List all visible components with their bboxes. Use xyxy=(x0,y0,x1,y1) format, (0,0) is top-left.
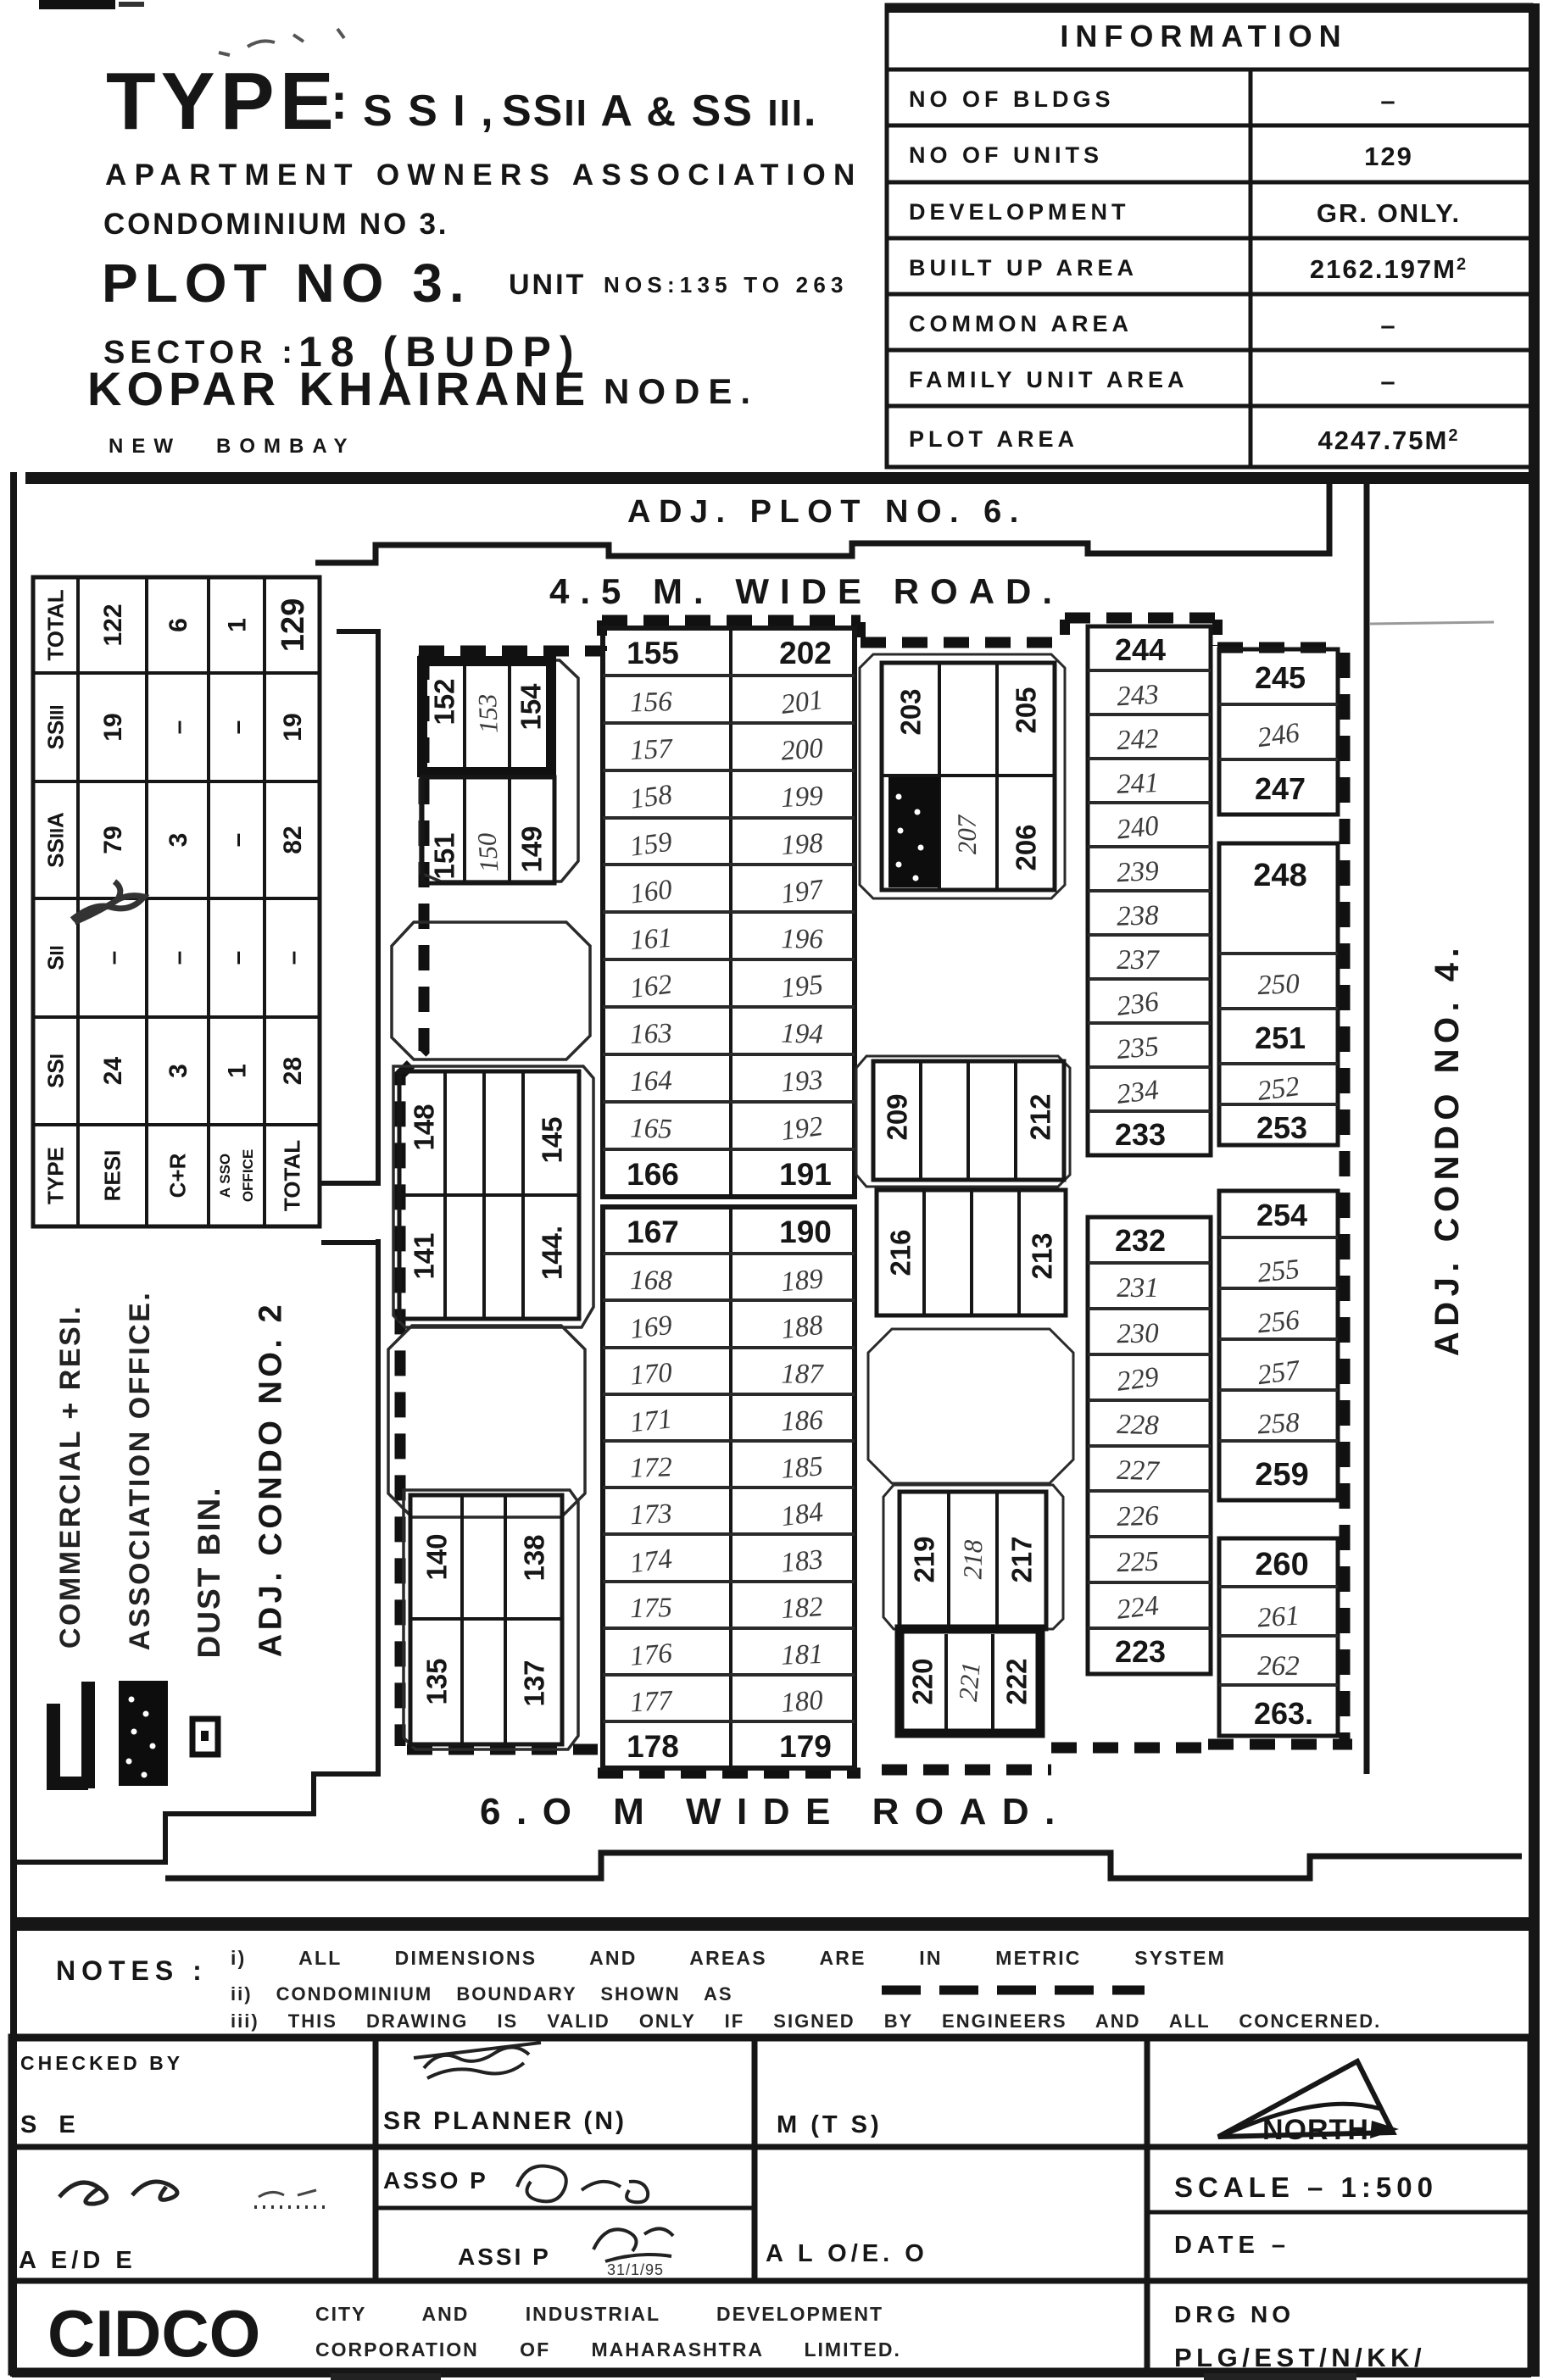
svg-text:207: 207 xyxy=(952,814,982,854)
svg-text:ASSOCIATION OFFICE.: ASSOCIATION OFFICE. xyxy=(124,1291,156,1651)
svg-text:3: 3 xyxy=(164,833,192,848)
svg-text:TYPE: TYPE xyxy=(43,1147,69,1204)
svg-text:171: 171 xyxy=(628,1404,673,1438)
svg-text:144.: 144. xyxy=(537,1226,568,1280)
svg-text:233: 233 xyxy=(1115,1117,1166,1152)
svg-text:258: 258 xyxy=(1256,1408,1301,1441)
svg-text:–: – xyxy=(1380,366,1396,396)
svg-text:161: 161 xyxy=(629,923,673,956)
svg-text:174: 174 xyxy=(628,1543,674,1579)
svg-text:6.O M WIDE ROAD.: 6.O M WIDE ROAD. xyxy=(480,1791,1071,1832)
svg-text:SSIIA: SSIIA xyxy=(43,812,69,868)
svg-text:ADJ. CONDO NO. 2: ADJ. CONDO NO. 2 xyxy=(253,1301,288,1657)
svg-text:122: 122 xyxy=(99,603,127,646)
svg-text:TYPE: TYPE xyxy=(106,56,339,147)
svg-text:–: – xyxy=(1380,310,1396,340)
svg-text:205: 205 xyxy=(1011,687,1042,733)
svg-text:–: – xyxy=(1380,86,1396,115)
svg-text:28: 28 xyxy=(279,1057,307,1085)
svg-text:244: 244 xyxy=(1115,632,1166,667)
svg-text:DUST BIN.: DUST BIN. xyxy=(192,1487,226,1659)
svg-text:223: 223 xyxy=(1115,1634,1166,1669)
svg-text:–: – xyxy=(224,951,252,965)
svg-text:190: 190 xyxy=(779,1215,832,1249)
svg-text:FAMILY UNIT AREA: FAMILY UNIT AREA xyxy=(909,367,1189,392)
svg-text:ASSO P: ASSO P xyxy=(383,2167,488,2194)
svg-text:235: 235 xyxy=(1116,1032,1160,1065)
svg-text:182: 182 xyxy=(780,1592,824,1625)
svg-text:203: 203 xyxy=(895,688,927,735)
svg-text:1: 1 xyxy=(224,618,252,632)
svg-text:DRG NO: DRG NO xyxy=(1174,2301,1295,2327)
svg-text:TOTAL: TOTAL xyxy=(43,589,69,660)
svg-text:252: 252 xyxy=(1256,1071,1301,1107)
svg-text:4247.75M2: 4247.75M2 xyxy=(1317,425,1459,455)
svg-text:CIDCO: CIDCO xyxy=(47,2296,260,2371)
svg-text:169: 169 xyxy=(628,1310,673,1345)
svg-text:CHECKED BY: CHECKED BY xyxy=(20,2052,183,2074)
svg-text:177: 177 xyxy=(629,1685,674,1718)
svg-text:–: – xyxy=(224,833,252,848)
svg-text:DATE –: DATE – xyxy=(1174,2232,1290,2259)
svg-text:A SSO: A SSO xyxy=(217,1154,233,1198)
svg-text:NOS:135 TO 263: NOS:135 TO 263 xyxy=(604,272,849,297)
svg-text:PLG/EST/N/KK/: PLG/EST/N/KK/ xyxy=(1174,2343,1426,2372)
svg-text:200: 200 xyxy=(780,733,825,767)
svg-text:NO OF BLDGS: NO OF BLDGS xyxy=(909,86,1115,112)
svg-text:SCALE – 1:500: SCALE – 1:500 xyxy=(1174,2171,1438,2203)
svg-text:246: 246 xyxy=(1256,718,1301,753)
svg-text:NO OF UNITS: NO OF UNITS xyxy=(909,142,1103,168)
svg-text:ii) CONDOMINIUM BOUNDARY SHOWN: ii) CONDOMINIUM BOUNDARY SHOWN AS xyxy=(231,1983,733,2005)
svg-text:175: 175 xyxy=(630,1593,672,1624)
svg-text:184: 184 xyxy=(779,1497,825,1532)
svg-text:iii) THIS DRAWING IS VALID ONL: iii) THIS DRAWING IS VALID ONLY IF SIGNE… xyxy=(231,2010,1381,2032)
svg-text:194: 194 xyxy=(781,1019,823,1050)
svg-text:213: 213 xyxy=(1027,1232,1058,1279)
svg-text:2162.197M2: 2162.197M2 xyxy=(1310,254,1468,284)
svg-text:196: 196 xyxy=(781,924,823,954)
svg-text:158: 158 xyxy=(628,780,674,815)
svg-text:247: 247 xyxy=(1255,771,1306,806)
svg-text:176: 176 xyxy=(629,1638,674,1672)
svg-text:248: 248 xyxy=(1253,858,1306,893)
svg-text:135: 135 xyxy=(421,1658,453,1704)
svg-text:250: 250 xyxy=(1256,969,1301,1001)
svg-text:A E/D E: A E/D E xyxy=(19,2247,136,2274)
svg-text:220: 220 xyxy=(907,1658,939,1704)
svg-text:157: 157 xyxy=(629,734,674,766)
svg-text:163: 163 xyxy=(630,1018,673,1049)
svg-text:155: 155 xyxy=(627,636,679,670)
svg-text:19: 19 xyxy=(279,713,307,741)
svg-text:255: 255 xyxy=(1256,1254,1301,1288)
svg-text:159: 159 xyxy=(628,826,674,862)
svg-text:79: 79 xyxy=(99,826,127,854)
svg-text:225: 225 xyxy=(1117,1547,1160,1579)
svg-text:240: 240 xyxy=(1115,810,1161,845)
svg-text:SR PLANNER (N): SR PLANNER (N) xyxy=(383,2107,627,2135)
svg-text:170: 170 xyxy=(629,1358,674,1392)
svg-text:232: 232 xyxy=(1115,1223,1166,1258)
svg-text:179: 179 xyxy=(779,1729,832,1764)
svg-text:UNIT: UNIT xyxy=(509,269,586,301)
svg-text:BUILT UP AREA: BUILT UP AREA xyxy=(909,255,1138,281)
svg-text:ASSI P: ASSI P xyxy=(458,2244,551,2270)
svg-text:234: 234 xyxy=(1115,1075,1161,1110)
svg-text:1: 1 xyxy=(224,1064,252,1078)
svg-text:195: 195 xyxy=(780,970,825,1004)
svg-text:APARTMENT OWNERS ASSOCIATION: APARTMENT OWNERS ASSOCIATION xyxy=(105,158,863,192)
svg-text:166: 166 xyxy=(627,1157,679,1192)
svg-text:221: 221 xyxy=(953,1660,986,1702)
svg-text:PLOT AREA: PLOT AREA xyxy=(909,426,1078,452)
svg-text:238: 238 xyxy=(1117,900,1160,931)
svg-text:141: 141 xyxy=(409,1232,440,1279)
svg-text:261: 261 xyxy=(1256,1600,1301,1633)
svg-text:NORTH: NORTH xyxy=(1262,2114,1369,2146)
svg-text:218: 218 xyxy=(958,1539,989,1579)
svg-text:189: 189 xyxy=(780,1264,825,1298)
svg-text:243: 243 xyxy=(1116,680,1160,713)
svg-text:–: – xyxy=(279,951,307,965)
svg-text:NODE.: NODE. xyxy=(604,371,759,411)
svg-text:260: 260 xyxy=(1255,1547,1308,1582)
svg-text:A L O/E. O: A L O/E. O xyxy=(766,2240,928,2267)
svg-text:140: 140 xyxy=(421,1533,453,1580)
svg-text:191: 191 xyxy=(779,1157,832,1192)
svg-text:152: 152 xyxy=(429,678,460,725)
svg-text:ADJ. CONDO NO. 4.: ADJ. CONDO NO. 4. xyxy=(1429,943,1466,1356)
svg-text:M (T S): M (T S) xyxy=(777,2111,883,2138)
svg-text:180: 180 xyxy=(780,1685,825,1719)
svg-text:172: 172 xyxy=(630,1452,672,1483)
svg-text:NEW: NEW xyxy=(109,435,181,458)
svg-text:–: – xyxy=(99,951,127,965)
svg-text:224: 224 xyxy=(1115,1591,1160,1626)
svg-text:–: – xyxy=(164,951,192,965)
svg-text:138: 138 xyxy=(519,1534,550,1581)
svg-text:SSI: SSI xyxy=(43,1054,69,1088)
svg-text:259: 259 xyxy=(1255,1457,1308,1493)
svg-text:217: 217 xyxy=(1006,1536,1038,1582)
svg-text:212: 212 xyxy=(1025,1093,1056,1140)
svg-text:254: 254 xyxy=(1256,1198,1307,1232)
svg-text:186: 186 xyxy=(781,1405,824,1437)
svg-text:187: 187 xyxy=(781,1360,824,1390)
svg-text:227: 227 xyxy=(1117,1455,1161,1487)
svg-text:219: 219 xyxy=(909,1536,940,1582)
svg-text:173: 173 xyxy=(629,1499,672,1531)
svg-text:149: 149 xyxy=(516,826,548,872)
svg-text:NOTES :: NOTES : xyxy=(56,1955,208,1986)
svg-text:6: 6 xyxy=(164,618,192,632)
svg-text:228: 228 xyxy=(1117,1410,1160,1442)
svg-text:226: 226 xyxy=(1117,1501,1160,1532)
svg-text:RESI: RESI xyxy=(100,1150,125,1202)
svg-text:241: 241 xyxy=(1117,768,1160,800)
svg-text:167: 167 xyxy=(627,1215,679,1249)
svg-text:SSIII: SSIII xyxy=(43,704,69,749)
svg-text:COMMON AREA: COMMON AREA xyxy=(909,311,1133,336)
svg-text:CORPORATION OF MAHARASHTRA LIM: CORPORATION OF MAHARASHTRA LIMITED. xyxy=(315,2338,901,2361)
svg-text:198: 198 xyxy=(780,828,824,861)
svg-text:–: – xyxy=(164,720,192,735)
svg-text:151: 151 xyxy=(429,832,460,879)
svg-text:150: 150 xyxy=(471,831,504,873)
svg-text:i) ALL DIMENSIONS AND AREAS AR: i) ALL DIMENSIONS AND AREAS ARE IN METRI… xyxy=(231,1947,1226,1969)
svg-text:222: 222 xyxy=(1001,1658,1033,1704)
svg-text:216: 216 xyxy=(885,1229,916,1276)
svg-text:253: 253 xyxy=(1256,1110,1307,1145)
svg-text:197: 197 xyxy=(779,874,826,909)
svg-text:262: 262 xyxy=(1257,1651,1300,1682)
svg-text:129: 129 xyxy=(276,598,311,652)
svg-text:178: 178 xyxy=(627,1729,679,1764)
svg-text:24: 24 xyxy=(99,1057,127,1086)
svg-text:209: 209 xyxy=(882,1093,913,1140)
svg-text:251: 251 xyxy=(1255,1020,1306,1055)
svg-text:PLOT NO 3.: PLOT NO 3. xyxy=(102,253,471,314)
svg-text:199: 199 xyxy=(780,781,823,813)
svg-text:263.: 263. xyxy=(1254,1696,1313,1731)
svg-text:193: 193 xyxy=(780,1065,824,1098)
svg-text:KOPAR KHAIRANE: KOPAR KHAIRANE xyxy=(87,362,590,415)
svg-text:COMMERCIAL + RESI.: COMMERCIAL + RESI. xyxy=(54,1304,86,1649)
svg-text:154: 154 xyxy=(515,683,547,731)
svg-text:153: 153 xyxy=(472,693,504,734)
svg-text:201: 201 xyxy=(779,685,825,720)
svg-text:SII: SII xyxy=(43,945,69,970)
svg-text:239: 239 xyxy=(1116,856,1159,888)
svg-text:188: 188 xyxy=(779,1310,825,1346)
svg-text:256: 256 xyxy=(1256,1305,1301,1340)
svg-text:S E: S E xyxy=(20,2111,83,2138)
svg-text:BOMBAY: BOMBAY xyxy=(216,435,355,458)
svg-text:229: 229 xyxy=(1115,1362,1161,1398)
svg-text:181: 181 xyxy=(781,1639,824,1671)
svg-text:4.5 M. WIDE ROAD.: 4.5 M. WIDE ROAD. xyxy=(549,571,1063,611)
svg-text:202: 202 xyxy=(779,636,832,670)
svg-text:164: 164 xyxy=(630,1065,673,1098)
svg-text:CONDOMINIUM NO 3.: CONDOMINIUM NO 3. xyxy=(103,208,448,241)
svg-text:TOTAL: TOTAL xyxy=(280,1140,305,1211)
svg-text:INFORMATION: INFORMATION xyxy=(1060,19,1347,53)
svg-text:148: 148 xyxy=(409,1104,440,1150)
svg-text:230: 230 xyxy=(1117,1318,1160,1349)
svg-text:257: 257 xyxy=(1256,1355,1302,1392)
svg-text:82: 82 xyxy=(279,826,307,854)
svg-text:156: 156 xyxy=(630,687,673,718)
svg-text:C+R: C+R xyxy=(165,1153,191,1198)
svg-text:129: 129 xyxy=(1364,142,1413,171)
svg-text:S S I ,: S S I , xyxy=(363,86,495,136)
svg-text:231: 231 xyxy=(1117,1273,1159,1304)
svg-text:3: 3 xyxy=(164,1064,192,1078)
svg-text:162: 162 xyxy=(628,970,673,1005)
svg-text::: : xyxy=(331,73,348,130)
svg-text:236: 236 xyxy=(1115,987,1161,1022)
svg-text:206: 206 xyxy=(1011,824,1042,870)
svg-text:242: 242 xyxy=(1116,724,1159,756)
svg-text:SSII A & SS III.: SSII A & SS III. xyxy=(502,86,818,136)
svg-text:DEVELOPMENT: DEVELOPMENT xyxy=(909,199,1130,225)
svg-text:192: 192 xyxy=(779,1111,825,1147)
svg-text:185: 185 xyxy=(780,1451,824,1485)
svg-text:31/1/95: 31/1/95 xyxy=(607,2261,664,2278)
svg-text:237: 237 xyxy=(1117,945,1160,976)
svg-text:137: 137 xyxy=(519,1660,550,1706)
svg-text:CITY AND INDUSTRIAL DEVELOPMEN: CITY AND INDUSTRIAL DEVELOPMENT xyxy=(315,2303,883,2325)
svg-text:245: 245 xyxy=(1255,660,1306,695)
svg-text:183: 183 xyxy=(780,1544,825,1579)
svg-text:168: 168 xyxy=(630,1265,672,1297)
svg-text:GR. ONLY.: GR. ONLY. xyxy=(1317,198,1461,228)
svg-text:145: 145 xyxy=(537,1116,568,1163)
svg-text:165: 165 xyxy=(630,1113,673,1145)
svg-text:–: – xyxy=(224,720,252,735)
svg-text:19: 19 xyxy=(99,713,127,741)
svg-text:OFFICE: OFFICE xyxy=(240,1149,256,1202)
svg-text:ADJ. PLOT NO. 6.: ADJ. PLOT NO. 6. xyxy=(627,494,1027,530)
svg-text:160: 160 xyxy=(628,874,674,909)
